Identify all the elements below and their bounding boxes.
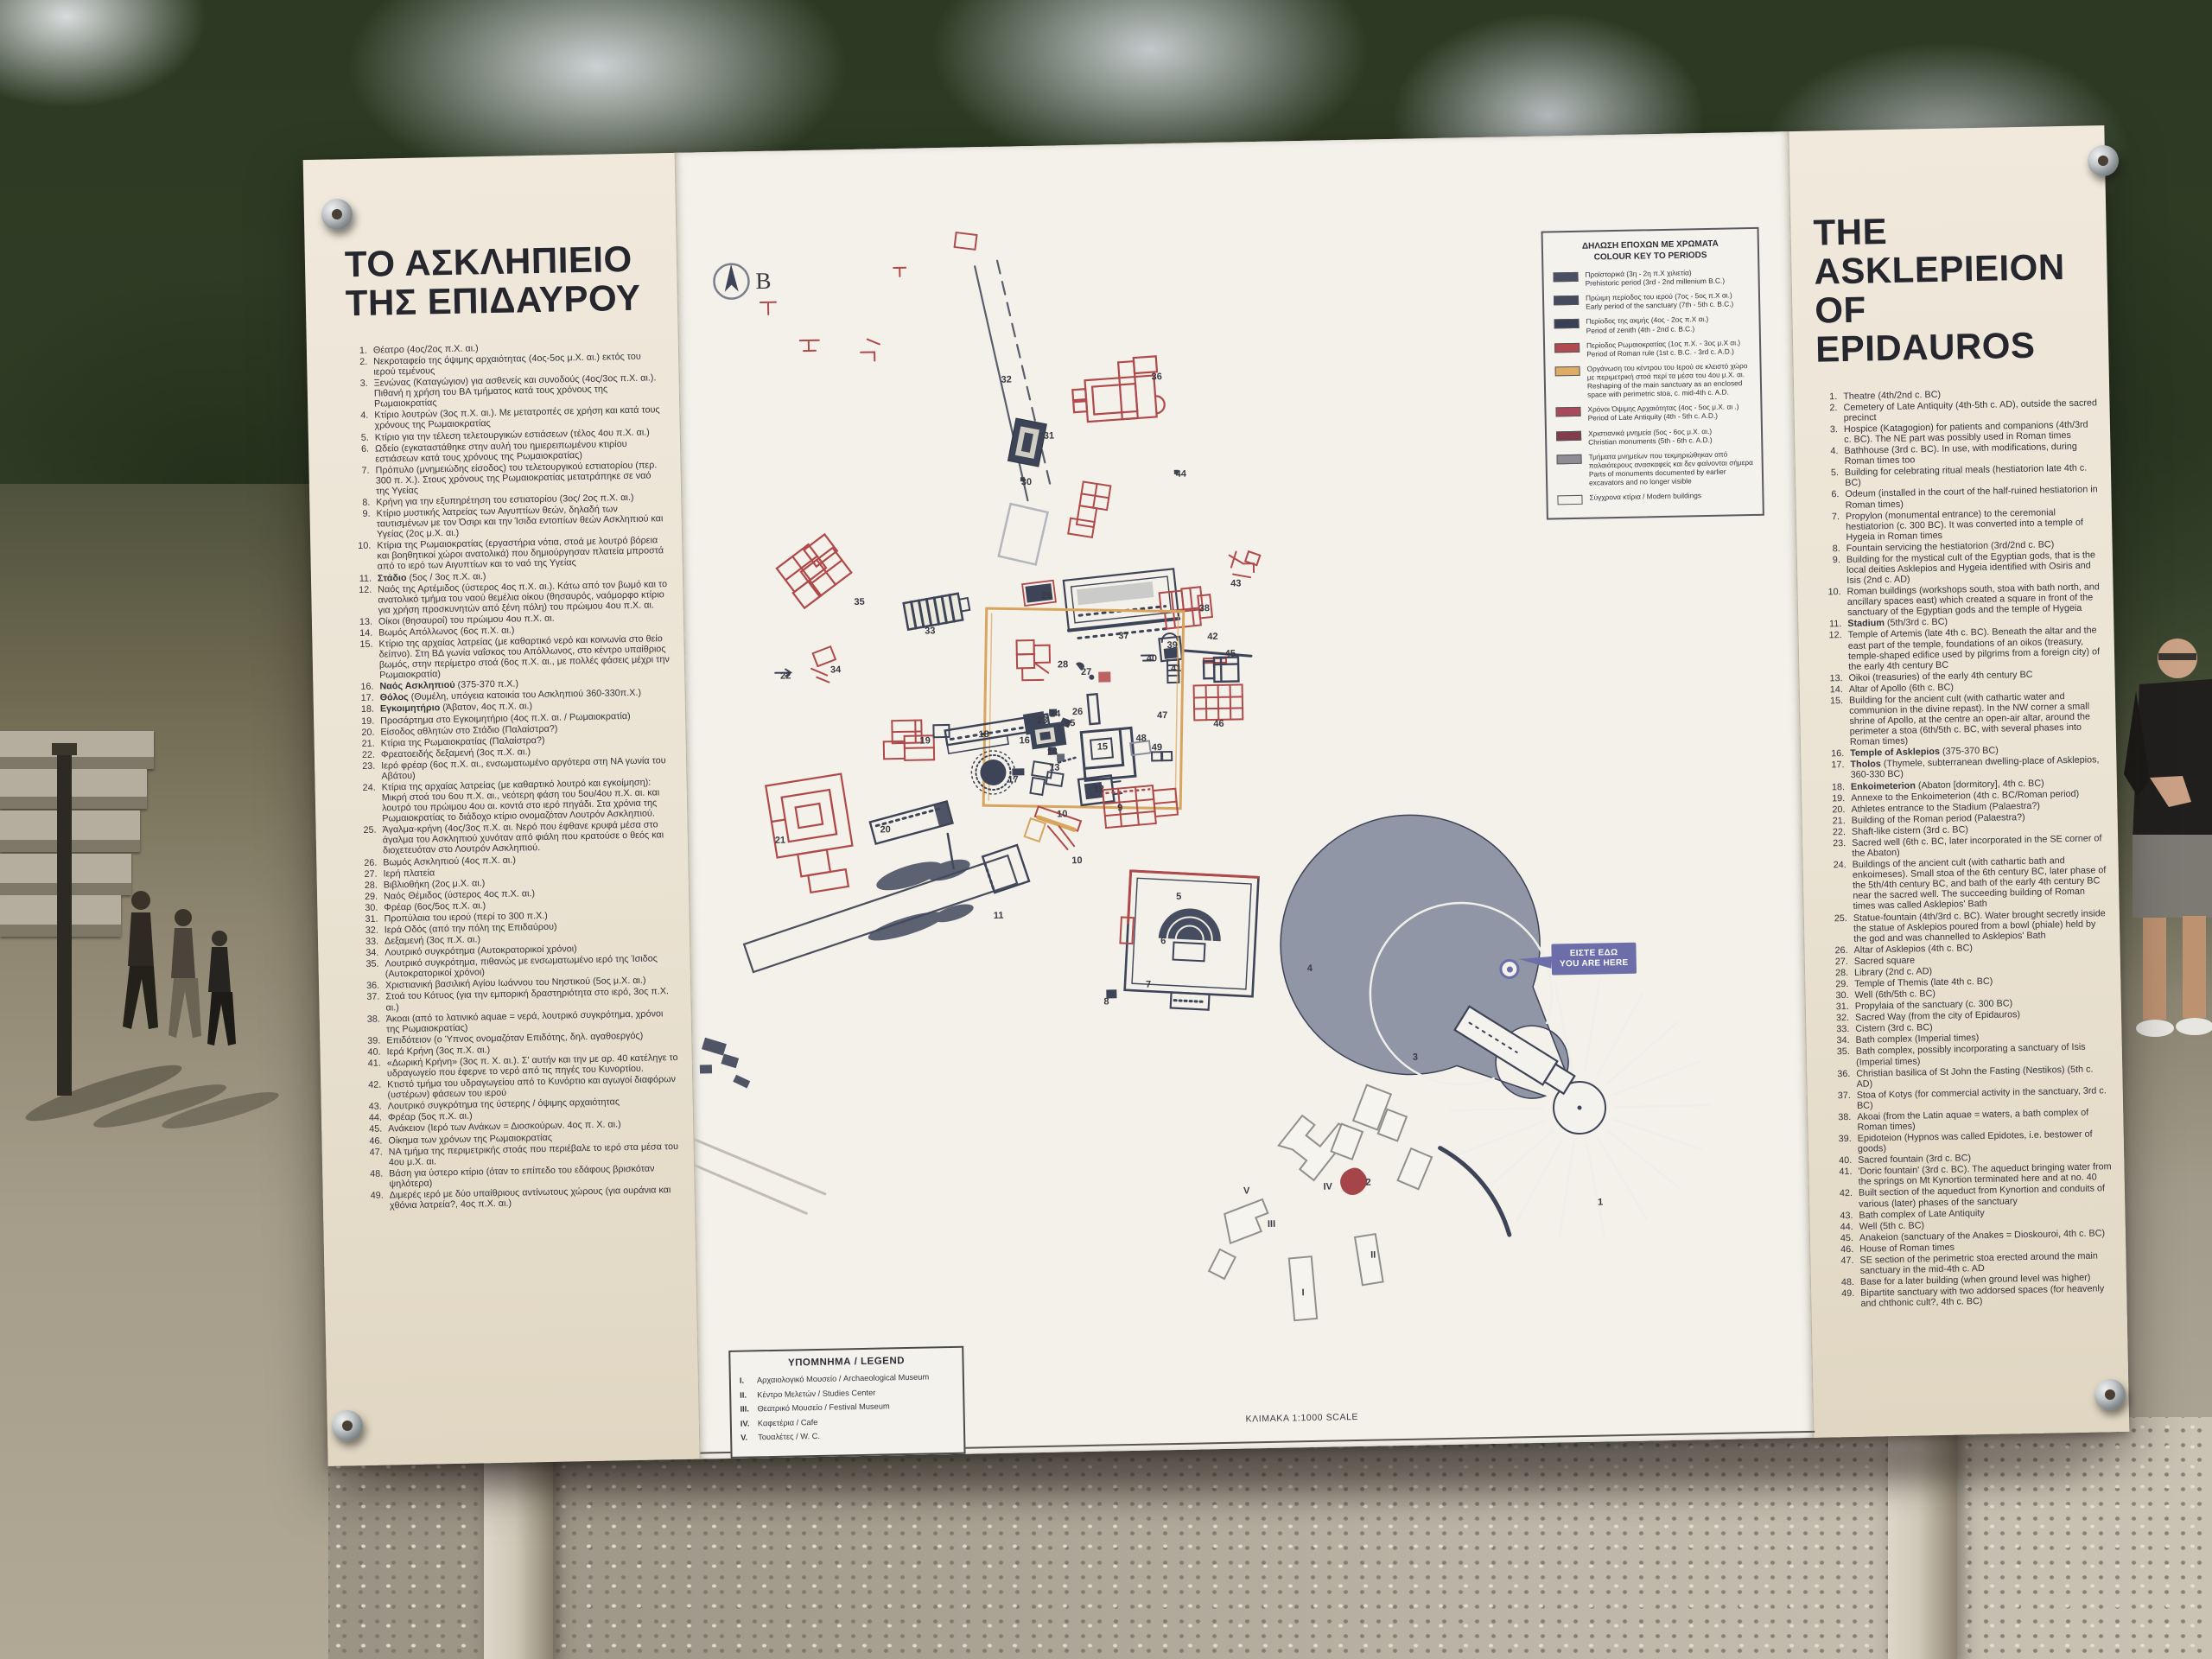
colour-key-entry: Τμήματα μνημείων που τεκμηριώθηκαν από π… [1554, 449, 1754, 488]
map-number-label: 3 [1413, 1052, 1418, 1063]
map-number-label: 12 [1094, 784, 1104, 794]
site-map: 1234567891010111213141516171819202122232… [677, 200, 1815, 1454]
colour-swatch [1557, 495, 1582, 505]
visitor-right [2124, 639, 2212, 1037]
colour-key-entry: Προϊστορικά (3η - 2η π.Χ χιλιετία) Prehi… [1551, 267, 1750, 289]
english-list-item: 10. Roman buildings (workshops south, st… [1820, 582, 2101, 618]
english-list-item: 49. Bipartite sanctuary with two addorse… [1834, 1283, 2114, 1309]
map-number-label: 43 [1230, 578, 1241, 588]
map-number-label: II [1370, 1250, 1376, 1261]
path-ground [0, 484, 328, 1659]
map-number-label: 20 [880, 824, 890, 835]
map-number-label: V [1243, 1185, 1250, 1196]
colour-key-entries: Προϊστορικά (3η - 2η π.Χ χιλιετία) Prehi… [1551, 267, 1754, 505]
map-number-label: 22 [780, 671, 791, 681]
colour-key-entry: Χριστιανικά μνημεία (5ος - 6ος μ.Χ. αι.)… [1554, 426, 1753, 448]
colour-key-entry: Οργάνωση του κέντρου του Ιερού σε κλειστ… [1553, 361, 1752, 400]
english-list-item: 9. Building for the mystical cult of the… [1820, 550, 2101, 586]
english-list-item: 15. Building for the ancient cult (with … [1822, 690, 2104, 748]
screw-bottom-right [2094, 1379, 2126, 1410]
map-number-label: 19 [919, 735, 930, 746]
map-number-label: 7 [1146, 979, 1151, 989]
map-number-label: 38 [1199, 603, 1210, 613]
colour-key-title: ΔΗΛΩΣΗ ΕΠΟΧΩΝ ΜΕ ΧΡΩΜΑΤΑ COLOUR KEY TO P… [1551, 238, 1750, 264]
greek-list-item: 12. Ναός της Αρτέμιδος (ύστερος 4ος π.Χ.… [351, 579, 670, 616]
ruin-fragments [759, 232, 979, 363]
greek-title: ΤΟ ΑΣΚΛΗΠΙΕΙΟ ΤΗΣ ΕΠΙΔΑΥΡΟΥ [345, 239, 664, 323]
greek-list-item: 9. Κτίριο μυστικής λατρείας των Αιγυπτίω… [349, 503, 668, 540]
greek-list-item: 15. Κτίριο της αρχαίας λατρείας (με καθα… [352, 633, 671, 681]
greek-list-item: 24. Κτίρια της αρχαίας λατρείας (με καθα… [355, 777, 674, 824]
greek-text-panel: ΤΟ ΑΣΚΛΗΠΙΕΙΟ ΤΗΣ ΕΠΙΔΑΥΡΟΥ 1. Θέατρο (4… [303, 153, 700, 1466]
map-number-label: 29 [1041, 591, 1052, 601]
colour-key-entry: Πρώιμη περίοδος του ιερού (7ος - 5ος π.Χ… [1552, 290, 1751, 312]
map-number-label: 11 [994, 911, 1004, 921]
legend-box: ΥΠΟΜΝΗΜΑ / LEGEND I. Αρχαιολογικό Μουσεί… [728, 1346, 965, 1459]
map-number-label: 30 [1021, 477, 1032, 487]
sacred-way [975, 260, 1052, 502]
colour-key-entry: Σύγχρονα κτίρια / Modern buildings [1555, 490, 1754, 505]
map-number-label: 42 [1207, 632, 1217, 642]
map-number-label: 46 [1213, 719, 1224, 729]
colour-key-entry: Περίοδος Ρωμαιοκρατίας (1ος π.Χ. - 3ος μ… [1553, 338, 1751, 359]
legend-items: I. Αρχαιολογικό Μουσείο / Archaeological… [740, 1372, 955, 1444]
english-list-item: 12. Temple of Artemis (late 4th c. BC). … [1821, 626, 2102, 673]
map-number-label: 21 [775, 836, 785, 846]
map-number-label: 28 [1058, 659, 1068, 670]
map-number-label: 36 [1151, 372, 1161, 382]
screw-bottom-left [332, 1410, 363, 1441]
english-list: 1. Theatre (4th/2nd c. BC) 2. Cemetery o… [1816, 386, 2114, 1310]
legend-title: ΥΠΟΜΝΗΜΑ / LEGEND [739, 1355, 953, 1370]
map-number-label: 9 [1117, 803, 1122, 813]
colour-swatch [1556, 454, 1581, 465]
cistern [904, 592, 971, 629]
stadium [742, 845, 1029, 974]
map-number-label: 26 [1072, 707, 1083, 717]
modern-buildings [1205, 1084, 1435, 1322]
colour-swatch [1554, 319, 1579, 329]
map-number-label: 23 [1037, 715, 1047, 726]
map-number-label: 10 [1057, 809, 1067, 819]
colour-swatch [1556, 430, 1581, 441]
map-number-label: 48 [1135, 734, 1146, 744]
map-number-label: 14 [1047, 747, 1058, 758]
stair-step [0, 810, 140, 852]
colour-swatch [1555, 407, 1580, 417]
site-map-panel: 1234567891010111213141516171819202122232… [675, 131, 1815, 1459]
map-number-label: 5 [1176, 892, 1181, 902]
map-number-label: 49 [1152, 742, 1162, 753]
screw-top-right [2088, 145, 2119, 176]
hestiatorion [1117, 871, 1259, 1013]
english-list-item: 7. Propylon (monumental entrance) to the… [1819, 506, 2101, 543]
english-list-item: 25. Statue-fountain (4th/3rd c. BC). Wat… [1827, 908, 2108, 944]
map-number-label: 41 [1171, 664, 1181, 674]
english-title: THE ASKLEPIEION OF EPIDAUROS [1813, 208, 2096, 369]
map-number-label: 44 [1176, 469, 1186, 480]
stair-step [0, 731, 154, 769]
legend-item: II. Κέντρο Μελετών / Studies Center [740, 1387, 954, 1401]
basilica [1071, 356, 1166, 423]
compass-letter: B [755, 267, 772, 294]
map-number-label: 35 [854, 597, 864, 607]
map-number-label: 39 [1166, 640, 1177, 651]
map-number-label: 40 [1147, 653, 1157, 664]
stoa-of-kotys [1064, 569, 1180, 639]
bath-complex [775, 533, 853, 608]
map-number-label: 8 [1103, 996, 1109, 1007]
map-number-label: 32 [1001, 374, 1011, 385]
map-number-label: 1 [1598, 1197, 1603, 1207]
map-number-label: 47 [1157, 710, 1167, 721]
colour-swatch [1554, 342, 1580, 353]
map-number-label: III [1268, 1219, 1275, 1230]
map-number-label: 13 [1049, 762, 1059, 772]
tholos [971, 750, 1025, 794]
you-are-here-callout: ΕΙΣΤΕ ΕΔΩ YOU ARE HERE [1551, 943, 1637, 976]
map-number-label: 10 [1071, 855, 1082, 866]
screw-top-left [321, 199, 353, 230]
map-number-label: 27 [1081, 667, 1091, 677]
legend-item: V. Τουαλέτες / W. C. [741, 1429, 955, 1443]
map-number-label: 37 [1118, 631, 1128, 641]
map-number-label: 25 [1065, 718, 1075, 728]
map-number-label: 16 [1019, 735, 1029, 746]
colour-key-box: ΔΗΛΩΣΗ ΕΠΟΧΩΝ ΜΕ ΧΡΩΜΑΤΑ COLOUR KEY TO P… [1541, 227, 1764, 520]
legend-item: IV. Καφετέρια / Cafe [741, 1415, 955, 1429]
colour-swatch [1553, 272, 1578, 283]
map-number-label: 17 [1007, 774, 1018, 785]
cemetery [1340, 1167, 1368, 1195]
greek-list-item: 3. Ξενώνας (Καταγώγιον) για ασθενείς και… [347, 372, 666, 410]
compass: B [710, 260, 772, 302]
map-number-label: 31 [1044, 431, 1054, 442]
map-number-label: 18 [978, 729, 988, 740]
legend-item: I. Αρχαιολογικό Μουσείο / Archaeological… [740, 1372, 954, 1386]
photo-scene: ΤΟ ΑΣΚΛΗΠΙΕΙΟ ΤΗΣ ΕΠΙΔΑΥΡΟΥ 1. Θέατρο (4… [0, 0, 2212, 1659]
map-number-label: 4 [1307, 963, 1313, 974]
information-board: ΤΟ ΑΣΚΛΗΠΙΕΙΟ ΤΗΣ ΕΠΙΔΑΥΡΟΥ 1. Θέατρο (4… [303, 125, 2130, 1466]
legend-item: III. Θεατρικό Μουσείο / Festival Museum [740, 1401, 954, 1414]
greek-list: 1. Θέατρο (4ος/2ος π.Χ. αι.) 2. Νεκροταφ… [346, 340, 681, 1211]
colour-key-entry: Περίοδος της ακμής (4ος - 2ος π.Χ αι.) P… [1552, 314, 1751, 335]
stair-step [0, 854, 131, 895]
colour-swatch [1555, 366, 1580, 377]
map-number-label: I [1301, 1287, 1304, 1298]
map-number-label: 33 [925, 626, 935, 636]
stair-step [0, 895, 121, 937]
temple-of-asklepios [1029, 721, 1066, 749]
map-number-label: 45 [1225, 649, 1236, 659]
map-number-label: 24 [1050, 709, 1060, 719]
map-number-label: 34 [830, 664, 841, 675]
map-number-label: 6 [1160, 936, 1166, 946]
map-number-label: IV [1323, 1182, 1332, 1192]
colour-key-entry: Χρόνοι Όψιμης Αρχαιότητας (4ος - 5ος μ.Χ… [1554, 402, 1752, 423]
english-text-panel: THE ASKLEPIEION OF EPIDAUROS 1. Theatre … [1789, 125, 2129, 1438]
greek-list-item: 7. Πρόπυλο (μνημειώδης είσοδος) του τελε… [348, 460, 667, 497]
map-number-label: 2 [1365, 1178, 1370, 1188]
greek-list-item: 25. Άγαλμα-κρήνη (4ος/3ος π.Χ. αι. Νερό … [355, 819, 674, 856]
colour-swatch [1554, 296, 1579, 306]
greek-list-item: 10. Κτίρια της Ρωμαιοκρατίας (εργαστήρια… [350, 535, 669, 572]
stair-step [0, 769, 147, 809]
map-scale-text: ΚΛΙΜΑΚΑ 1:1000 SCALE [1245, 1412, 1358, 1425]
you-are-here-pointer [1518, 955, 1552, 969]
north-arrow-icon [710, 260, 753, 302]
map-number-label: 15 [1097, 741, 1108, 752]
english-list-item: 24. Buildings of the ancient cult (with … [1826, 855, 2107, 912]
propylaia [1007, 418, 1046, 467]
